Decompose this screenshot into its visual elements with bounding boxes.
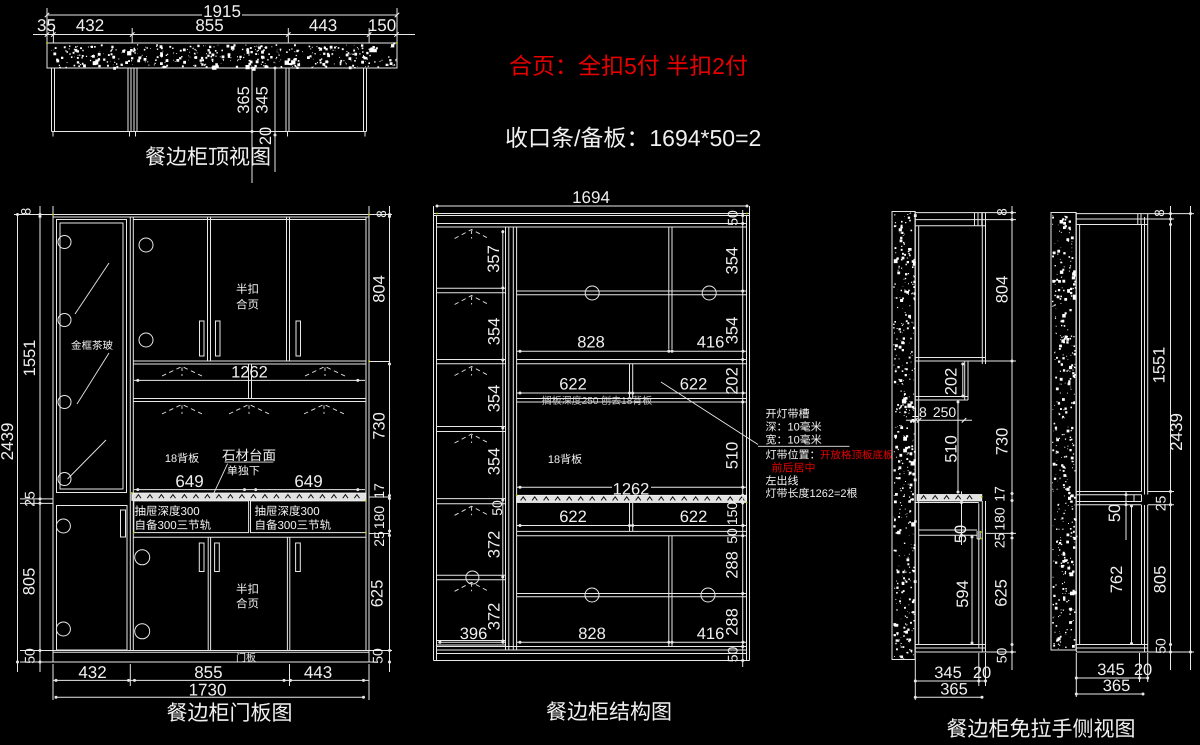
svg-text:20: 20: [257, 127, 275, 145]
svg-text:8: 8: [995, 208, 1010, 216]
svg-text:150: 150: [368, 16, 396, 35]
svg-text:18背板: 18背板: [165, 452, 199, 465]
svg-text:50: 50: [994, 648, 1010, 664]
svg-text:443: 443: [304, 663, 332, 682]
svg-text:50: 50: [725, 210, 741, 226]
svg-text:50: 50: [1106, 504, 1124, 522]
svg-text:合页：全扣5付 半扣2付: 合页：全扣5付 半扣2付: [509, 53, 748, 79]
svg-text:354: 354: [724, 317, 742, 345]
svg-text:594: 594: [954, 580, 972, 608]
svg-text:855: 855: [194, 663, 222, 682]
svg-text:深：10毫米: 深：10毫米: [766, 421, 822, 434]
svg-text:354: 354: [486, 385, 504, 413]
svg-text:416: 416: [697, 625, 725, 643]
svg-text:50: 50: [952, 525, 970, 543]
svg-text:828: 828: [577, 334, 605, 352]
svg-text:396: 396: [460, 625, 488, 643]
svg-text:金框茶玻: 金框茶玻: [71, 340, 113, 352]
svg-text:354: 354: [724, 247, 742, 275]
svg-text:372: 372: [486, 603, 504, 631]
svg-text:622: 622: [559, 508, 587, 526]
svg-text:自备300三节轨: 自备300三节轨: [255, 519, 332, 532]
svg-text:510: 510: [724, 442, 742, 470]
svg-text:804: 804: [994, 276, 1012, 304]
svg-text:180: 180: [371, 506, 387, 530]
svg-text:622: 622: [559, 376, 587, 394]
svg-text:合页: 合页: [236, 299, 259, 312]
svg-text:649: 649: [294, 472, 322, 491]
svg-text:餐边柜结构图: 餐边柜结构图: [546, 701, 672, 724]
svg-text:灯带位置：: 灯带位置：: [766, 449, 821, 462]
svg-text:50: 50: [1153, 638, 1169, 654]
svg-text:25: 25: [371, 531, 387, 547]
svg-text:250: 250: [933, 404, 957, 420]
svg-text:1551: 1551: [21, 340, 39, 377]
svg-text:730: 730: [994, 428, 1012, 456]
svg-text:抽屉深度300: 抽屉深度300: [135, 505, 200, 518]
svg-text:625: 625: [369, 580, 387, 608]
svg-text:半扣: 半扣: [236, 283, 259, 296]
svg-text:餐边柜顶视图: 餐边柜顶视图: [145, 146, 271, 169]
svg-text:345: 345: [934, 664, 962, 682]
svg-text:餐边柜门板图: 餐边柜门板图: [167, 702, 293, 725]
svg-text:2439: 2439: [0, 423, 17, 461]
svg-text:8: 8: [1152, 209, 1167, 217]
svg-text:1730: 1730: [189, 681, 227, 700]
svg-text:50: 50: [370, 648, 386, 664]
svg-text:1551: 1551: [1151, 347, 1169, 384]
svg-text:804: 804: [371, 275, 389, 303]
svg-text:432: 432: [78, 663, 106, 682]
svg-text:自备300三节轨: 自备300三节轨: [135, 519, 212, 532]
svg-text:搁板深度250 刨去18背板: 搁板深度250 刨去18背板: [542, 395, 653, 407]
svg-text:762: 762: [1108, 566, 1126, 594]
svg-text:432: 432: [76, 16, 104, 35]
svg-text:180: 180: [992, 507, 1008, 531]
svg-text:单独下: 单独下: [227, 465, 260, 478]
svg-text:855: 855: [195, 16, 223, 35]
svg-text:50: 50: [725, 647, 741, 663]
svg-text:730: 730: [371, 412, 389, 440]
svg-text:625: 625: [993, 579, 1011, 607]
svg-text:443: 443: [309, 16, 337, 35]
svg-text:35: 35: [37, 16, 56, 35]
svg-text:828: 828: [578, 625, 606, 643]
svg-text:石材台面: 石材台面: [222, 448, 276, 463]
svg-text:50: 50: [724, 528, 740, 544]
svg-text:合页: 合页: [236, 598, 259, 611]
svg-text:开放格顶板底板: 开放格顶板底板: [820, 450, 894, 462]
svg-text:开灯带槽: 开灯带槽: [766, 408, 810, 421]
svg-text:20: 20: [973, 664, 991, 682]
svg-text:805: 805: [21, 568, 39, 596]
svg-text:288: 288: [724, 608, 742, 636]
svg-text:416: 416: [697, 334, 725, 352]
svg-text:354: 354: [486, 318, 504, 346]
svg-text:1694: 1694: [572, 188, 610, 207]
svg-text:25: 25: [992, 533, 1008, 549]
svg-text:622: 622: [680, 376, 708, 394]
svg-text:365: 365: [940, 681, 968, 699]
svg-text:150: 150: [724, 502, 740, 526]
svg-text:357: 357: [485, 245, 503, 273]
svg-text:372: 372: [486, 531, 504, 559]
svg-text:365: 365: [235, 86, 253, 114]
svg-text:354: 354: [486, 448, 504, 476]
svg-text:抽屉深度300: 抽屉深度300: [255, 505, 320, 518]
svg-text:202: 202: [943, 368, 961, 396]
svg-text:餐边柜免拉手侧视图: 餐边柜免拉手侧视图: [947, 718, 1136, 741]
svg-text:前后居中: 前后居中: [772, 462, 816, 475]
svg-text:510: 510: [943, 435, 961, 463]
svg-text:288: 288: [724, 551, 742, 579]
svg-text:17: 17: [992, 486, 1008, 502]
svg-text:805: 805: [1152, 566, 1170, 594]
svg-text:门板: 门板: [236, 652, 256, 664]
svg-text:18: 18: [911, 404, 927, 420]
svg-text:649: 649: [175, 472, 203, 491]
svg-text:202: 202: [724, 367, 742, 395]
svg-text:宽：10毫米: 宽：10毫米: [766, 434, 822, 447]
svg-text:365: 365: [1103, 677, 1131, 695]
svg-text:左出线: 左出线: [766, 475, 799, 488]
svg-text:50: 50: [489, 500, 505, 516]
svg-text:8: 8: [374, 210, 389, 218]
svg-text:345: 345: [254, 86, 272, 114]
svg-text:1262: 1262: [231, 364, 268, 382]
svg-text:灯带长度1262=2根: 灯带长度1262=2根: [766, 487, 858, 500]
svg-text:2439: 2439: [1167, 413, 1186, 451]
svg-text:半扣: 半扣: [236, 583, 259, 596]
svg-text:622: 622: [680, 508, 708, 526]
svg-text:25: 25: [1153, 496, 1169, 512]
svg-text:20: 20: [1134, 661, 1152, 679]
svg-text:17: 17: [371, 483, 387, 499]
svg-text:收口条/备板：1694*50=2: 收口条/备板：1694*50=2: [505, 125, 761, 151]
svg-text:18背板: 18背板: [548, 453, 582, 466]
